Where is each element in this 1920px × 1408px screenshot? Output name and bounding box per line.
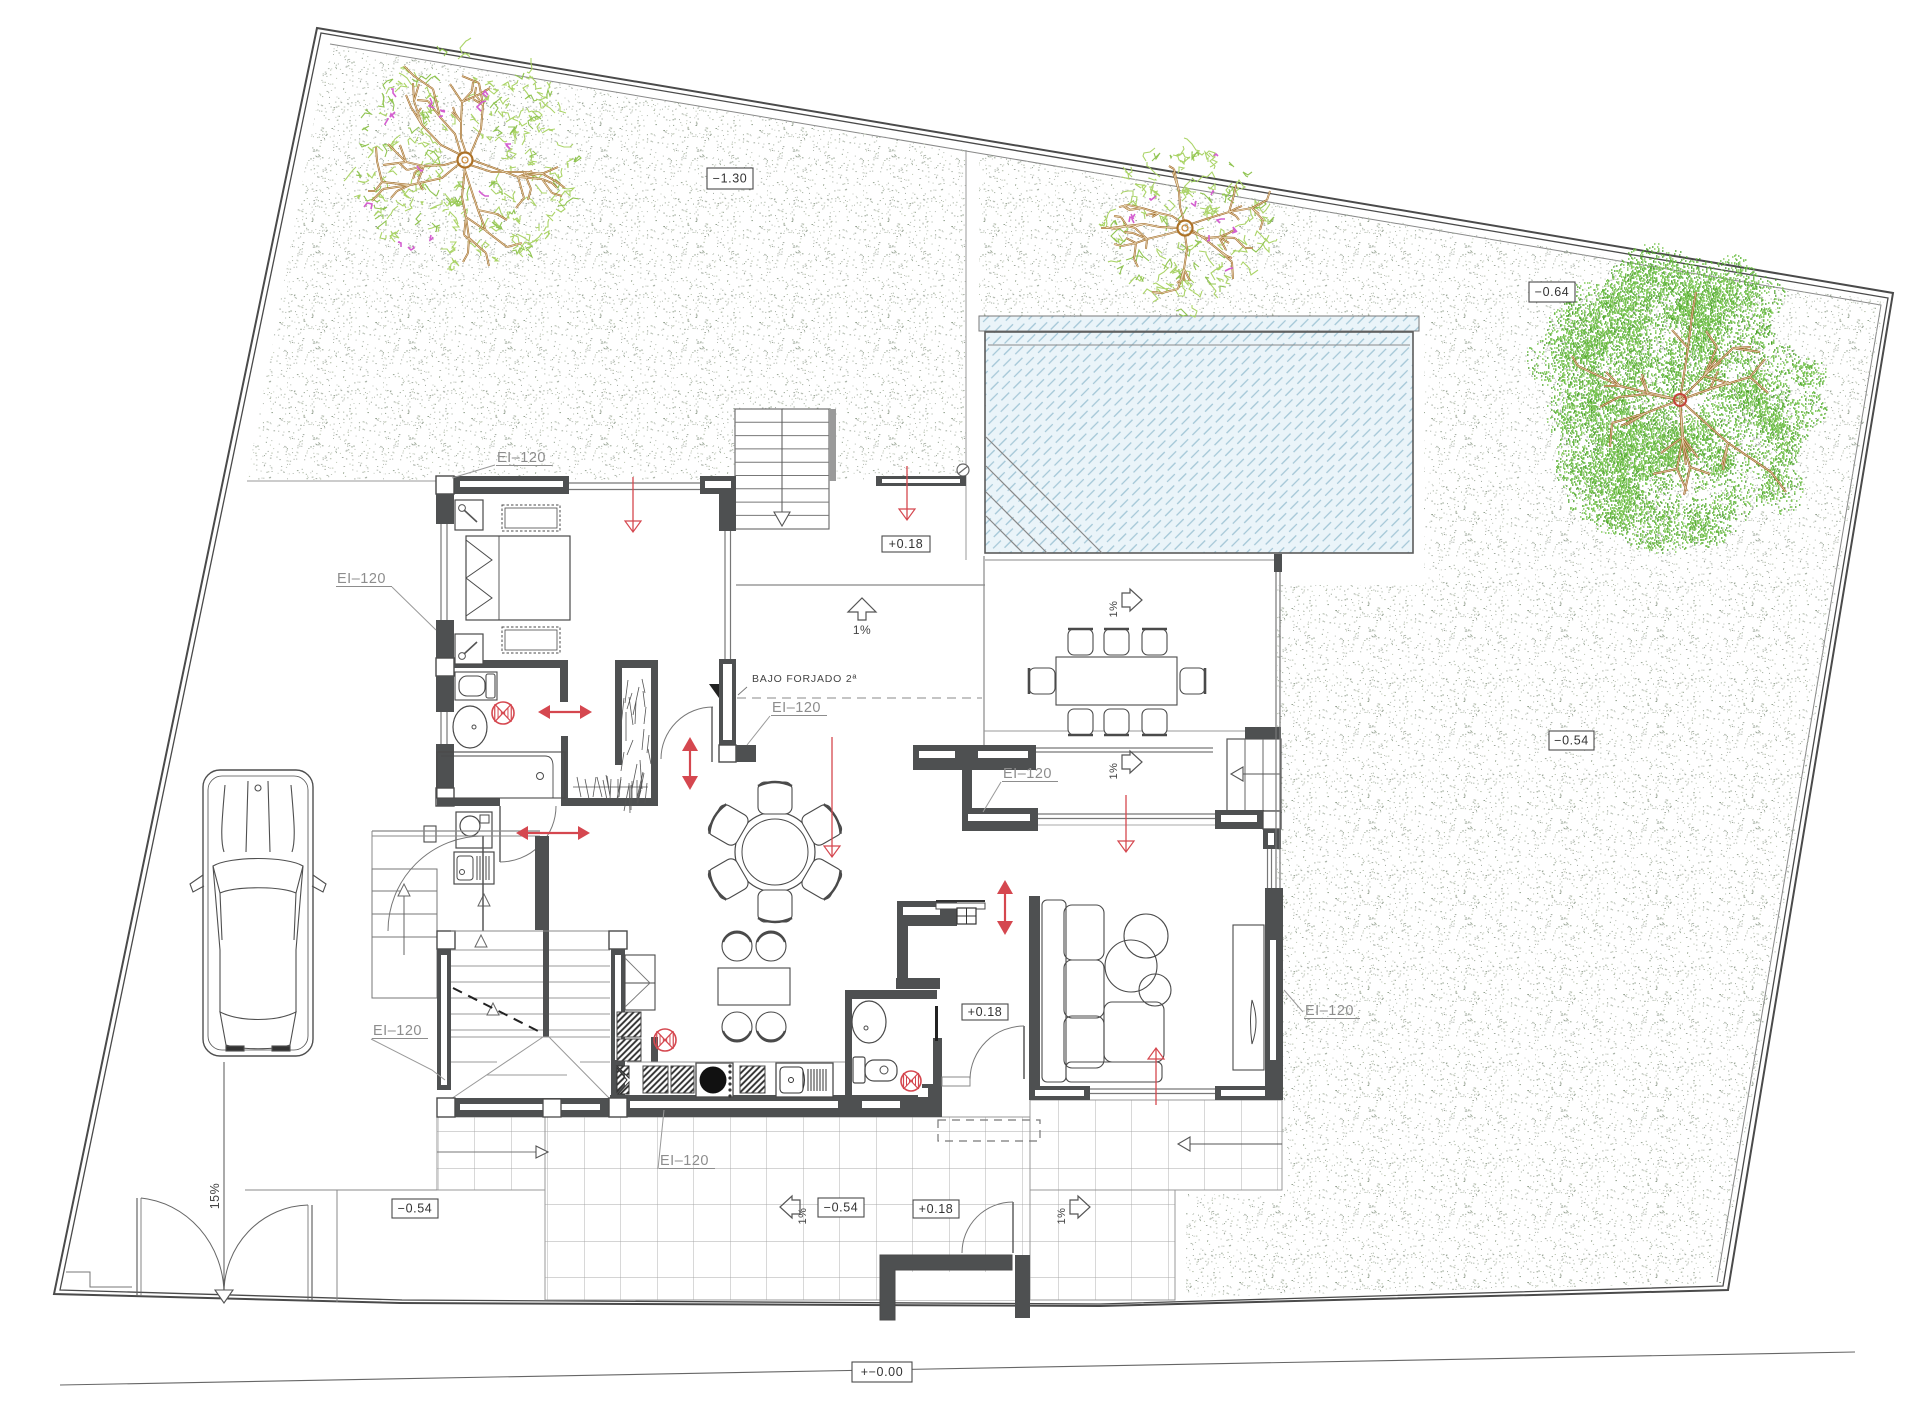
svg-text:−1.30: −1.30 — [713, 172, 748, 186]
svg-text:EI–120: EI–120 — [660, 1153, 709, 1169]
svg-text:EI–120: EI–120 — [337, 571, 386, 587]
svg-text:−0.64: −0.64 — [1535, 285, 1570, 299]
svg-text:15%: 15% — [208, 1183, 222, 1210]
svg-text:+0.18: +0.18 — [919, 1202, 954, 1216]
svg-text:1%: 1% — [797, 1208, 809, 1225]
svg-text:1%: 1% — [1056, 1208, 1068, 1225]
svg-text:1%: 1% — [1108, 601, 1120, 618]
svg-text:+0.18: +0.18 — [968, 1005, 1003, 1019]
svg-text:EI–120: EI–120 — [1305, 1003, 1354, 1019]
svg-text:EI–120: EI–120 — [1003, 766, 1052, 782]
svg-text:EI–120: EI–120 — [772, 700, 821, 716]
svg-text:BAJO FORJADO 2ª: BAJO FORJADO 2ª — [752, 673, 857, 685]
svg-text:1%: 1% — [1108, 763, 1120, 780]
svg-text:−0.54: −0.54 — [824, 1201, 859, 1215]
svg-text:+−0.00: +−0.00 — [861, 1365, 904, 1379]
svg-text:−0.54: −0.54 — [398, 1202, 433, 1216]
svg-text:−0.54: −0.54 — [1554, 734, 1589, 748]
svg-text:EI–120: EI–120 — [373, 1023, 422, 1039]
svg-text:1%: 1% — [853, 623, 871, 637]
svg-text:EI–120: EI–120 — [497, 450, 546, 466]
svg-text:+0.18: +0.18 — [889, 537, 924, 551]
